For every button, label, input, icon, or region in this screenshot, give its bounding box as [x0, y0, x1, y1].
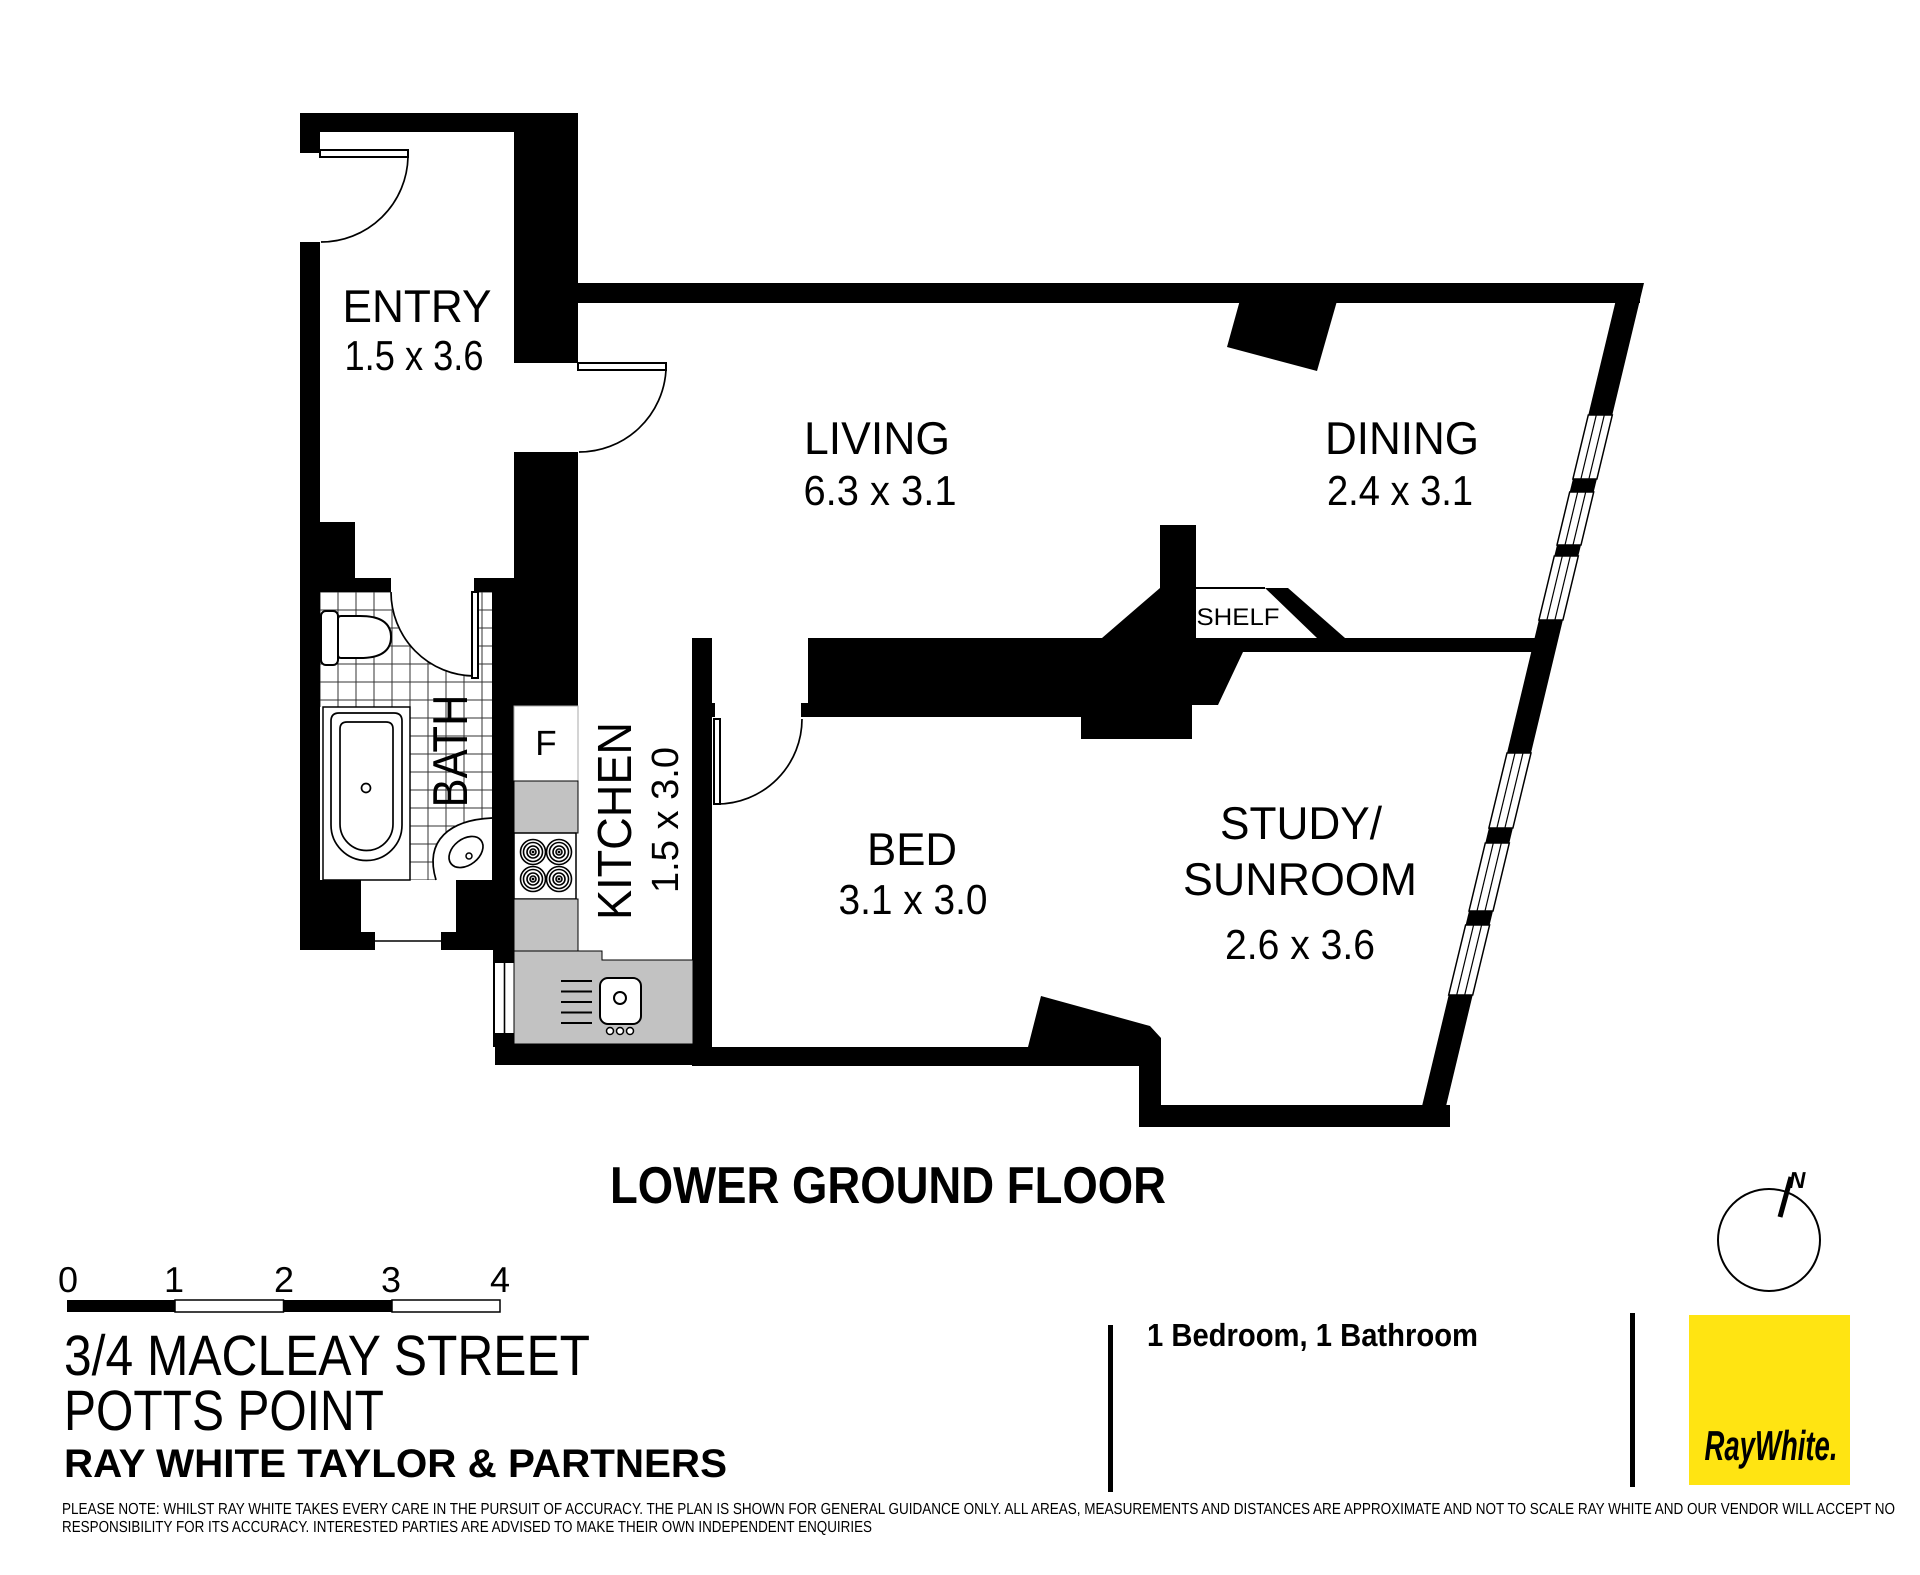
svg-text:2.4 x 3.1: 2.4 x 3.1 [1327, 467, 1473, 514]
svg-text:1.5 x 3.6: 1.5 x 3.6 [345, 332, 484, 379]
svg-text:DINING: DINING [1325, 412, 1479, 464]
svg-text:3.1 x 3.0: 3.1 x 3.0 [839, 876, 988, 923]
svg-text:LIVING: LIVING [804, 412, 950, 464]
svg-text:1 Bedroom, 1 Bathroom: 1 Bedroom, 1 Bathroom [1147, 1317, 1478, 1353]
svg-text:LOWER GROUND FLOOR: LOWER GROUND FLOOR [610, 1157, 1166, 1215]
svg-text:2.6 x 3.6: 2.6 x 3.6 [1225, 921, 1375, 968]
svg-text:STUDY/: STUDY/ [1220, 797, 1382, 849]
svg-text:2: 2 [274, 1259, 294, 1300]
svg-text:BED: BED [867, 823, 957, 875]
svg-text:1: 1 [164, 1259, 184, 1300]
svg-text:RAY WHITE TAYLOR & PARTNERS: RAY WHITE TAYLOR & PARTNERS [64, 1442, 727, 1486]
svg-text:SHELF: SHELF [1197, 604, 1280, 631]
svg-text:RayWhite.: RayWhite. [1705, 1422, 1838, 1469]
svg-text:SUNROOM: SUNROOM [1183, 853, 1417, 905]
svg-text:POTTS POINT: POTTS POINT [64, 1379, 384, 1443]
svg-text:PLEASE NOTE: WHILST RAY WHITE: PLEASE NOTE: WHILST RAY WHITE TAKES EVER… [62, 1501, 1895, 1518]
svg-text:RESPONSIBILITY FOR ITS ACCURAC: RESPONSIBILITY FOR ITS ACCURACY. INTERES… [62, 1519, 872, 1536]
svg-text:3: 3 [381, 1259, 401, 1300]
svg-text:0: 0 [58, 1259, 78, 1300]
svg-text:1.5 x 3.0: 1.5 x 3.0 [645, 747, 687, 893]
svg-text:N: N [1789, 1167, 1806, 1193]
svg-text:F: F [535, 724, 556, 763]
svg-text:ENTRY: ENTRY [343, 280, 492, 332]
svg-text:KITCHEN: KITCHEN [589, 722, 642, 920]
svg-text:BATH: BATH [424, 695, 478, 808]
svg-text:4: 4 [490, 1259, 510, 1300]
svg-text:6.3 x 3.1: 6.3 x 3.1 [804, 467, 957, 514]
